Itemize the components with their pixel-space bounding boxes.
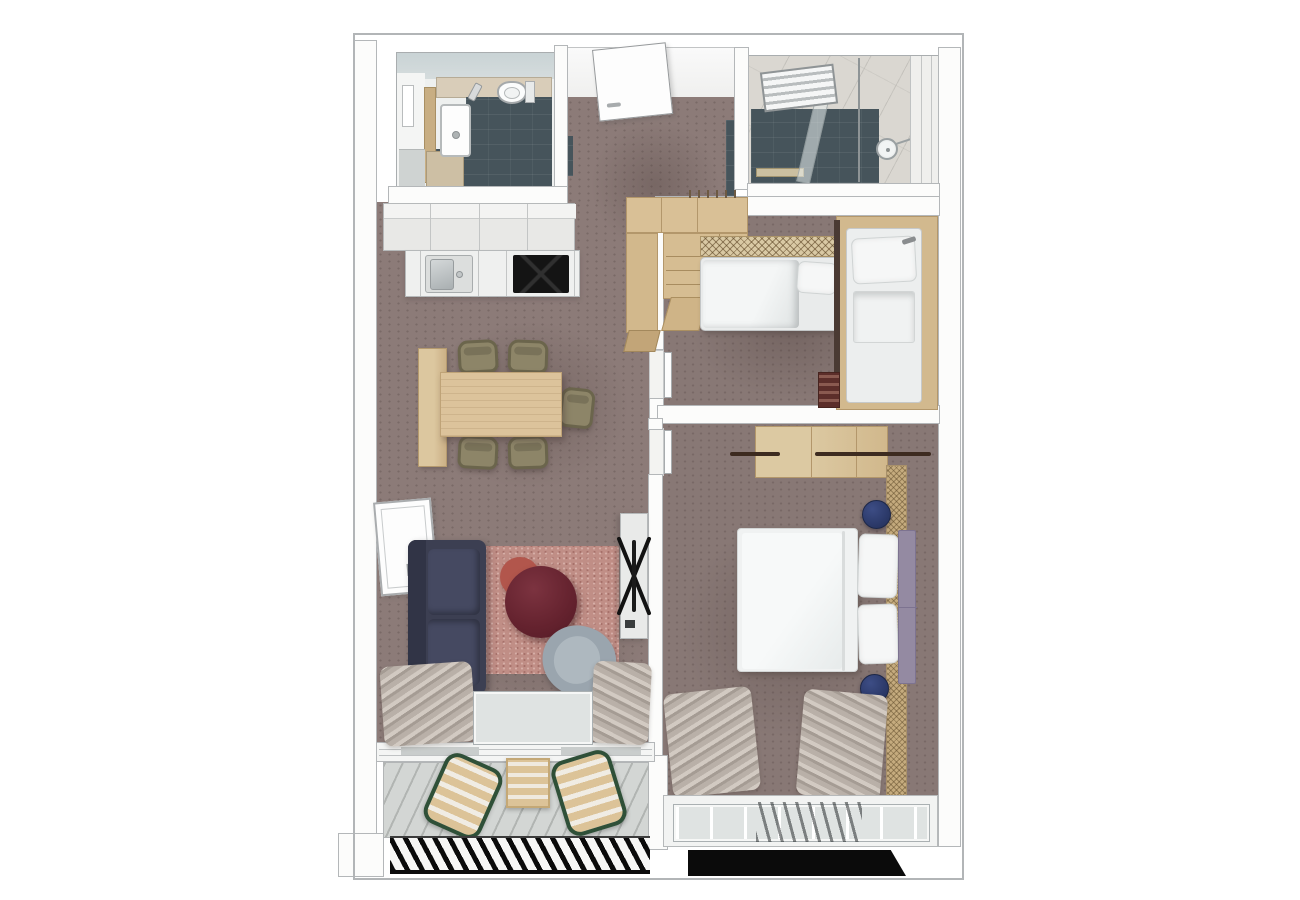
balcony-slat-table — [506, 758, 550, 808]
living-master-wall — [648, 474, 663, 758]
rain-shower-head-icon — [876, 138, 898, 160]
duvet-sheen — [742, 533, 842, 669]
toilet-seat — [504, 87, 520, 99]
pouf-1 — [862, 500, 891, 529]
dining-chair-1 — [457, 339, 499, 374]
master-window-front — [663, 795, 938, 847]
duvet-fold-line — [842, 531, 845, 671]
washbasin — [440, 104, 471, 157]
balcony-railing — [390, 836, 650, 874]
dining-table — [440, 372, 562, 437]
entrance-door — [592, 42, 673, 121]
master-pillow-1 — [857, 533, 899, 598]
master-curtain-right — [796, 689, 889, 802]
hall-wardrobe-front — [623, 330, 660, 352]
master-curtain-left — [663, 686, 761, 799]
kids-duvet-1 — [703, 260, 799, 328]
shower-rail-pole — [858, 58, 860, 182]
living-curtain-right — [590, 661, 652, 746]
outer-wall-left — [354, 40, 377, 835]
living-curtain-left — [379, 661, 476, 747]
kids-bed-vertical-mattress — [846, 228, 922, 403]
toilet-cistern — [525, 81, 535, 103]
bathroom-room — [396, 52, 556, 189]
shower-right-jamb — [910, 56, 939, 186]
door-handle — [607, 102, 621, 107]
dining-chair-2 — [507, 339, 548, 373]
bathroom-floor-tiles-light — [399, 149, 425, 188]
coat-hooks — [689, 190, 741, 198]
headboard-purple — [898, 530, 916, 684]
dining-chair-4 — [457, 435, 499, 470]
wardrobe-rail-long — [815, 452, 931, 456]
master-door-leaf — [664, 430, 672, 474]
master-door-sill — [649, 428, 664, 476]
kitchen-counter — [405, 250, 580, 297]
divider-entry-shower — [734, 47, 749, 190]
kids-bed-horizontal — [700, 257, 840, 331]
facade-black-band — [688, 850, 906, 876]
headboard-seam — [899, 607, 917, 608]
outer-wall-left-footing — [338, 833, 384, 877]
living-master-wall-top — [648, 418, 663, 430]
tv-pole — [632, 540, 636, 612]
mirror — [402, 85, 414, 127]
cabinet-top-face — [384, 204, 576, 219]
door-rail-line-2 — [379, 755, 652, 756]
sink-drain — [456, 271, 463, 278]
outer-wall-right — [938, 47, 961, 847]
divider-bath-entry — [554, 45, 568, 195]
sofa-cushion-1 — [428, 549, 480, 615]
hall-wardrobe-top — [626, 197, 748, 233]
shower-head-center — [886, 148, 890, 152]
kids-door-leaf — [664, 352, 672, 398]
kitchen-tall-cabinets — [383, 203, 575, 251]
dining-chair-5 — [507, 435, 548, 469]
wardrobe-rail-short — [730, 452, 780, 456]
bathroom-bottom-wall — [388, 186, 568, 204]
basin-drain — [452, 131, 460, 139]
induction-cooktop — [513, 255, 569, 293]
toilet — [497, 81, 527, 104]
master-pillow-2 — [857, 603, 899, 664]
sink-bowl — [430, 259, 454, 290]
hall-wardrobe-side — [626, 233, 658, 333]
door-glass-strip — [401, 747, 479, 755]
floor-plan-canvas — [0, 0, 1300, 900]
bunk-ladder — [818, 372, 840, 408]
dining-chair-3 — [558, 386, 596, 429]
tv-on-stand — [618, 530, 650, 622]
kids-door-sill — [649, 350, 664, 400]
shower-room — [747, 55, 938, 185]
kids-pillow-1 — [796, 261, 838, 296]
bathroom-tile-floor — [466, 97, 552, 190]
living-door-glass-pane — [474, 692, 592, 744]
french-balcony-railing — [756, 802, 862, 842]
mesh-headboard — [700, 236, 838, 257]
kids-folded-blanket — [853, 291, 915, 343]
kitchen-sink — [425, 255, 473, 293]
double-bed — [737, 528, 858, 672]
